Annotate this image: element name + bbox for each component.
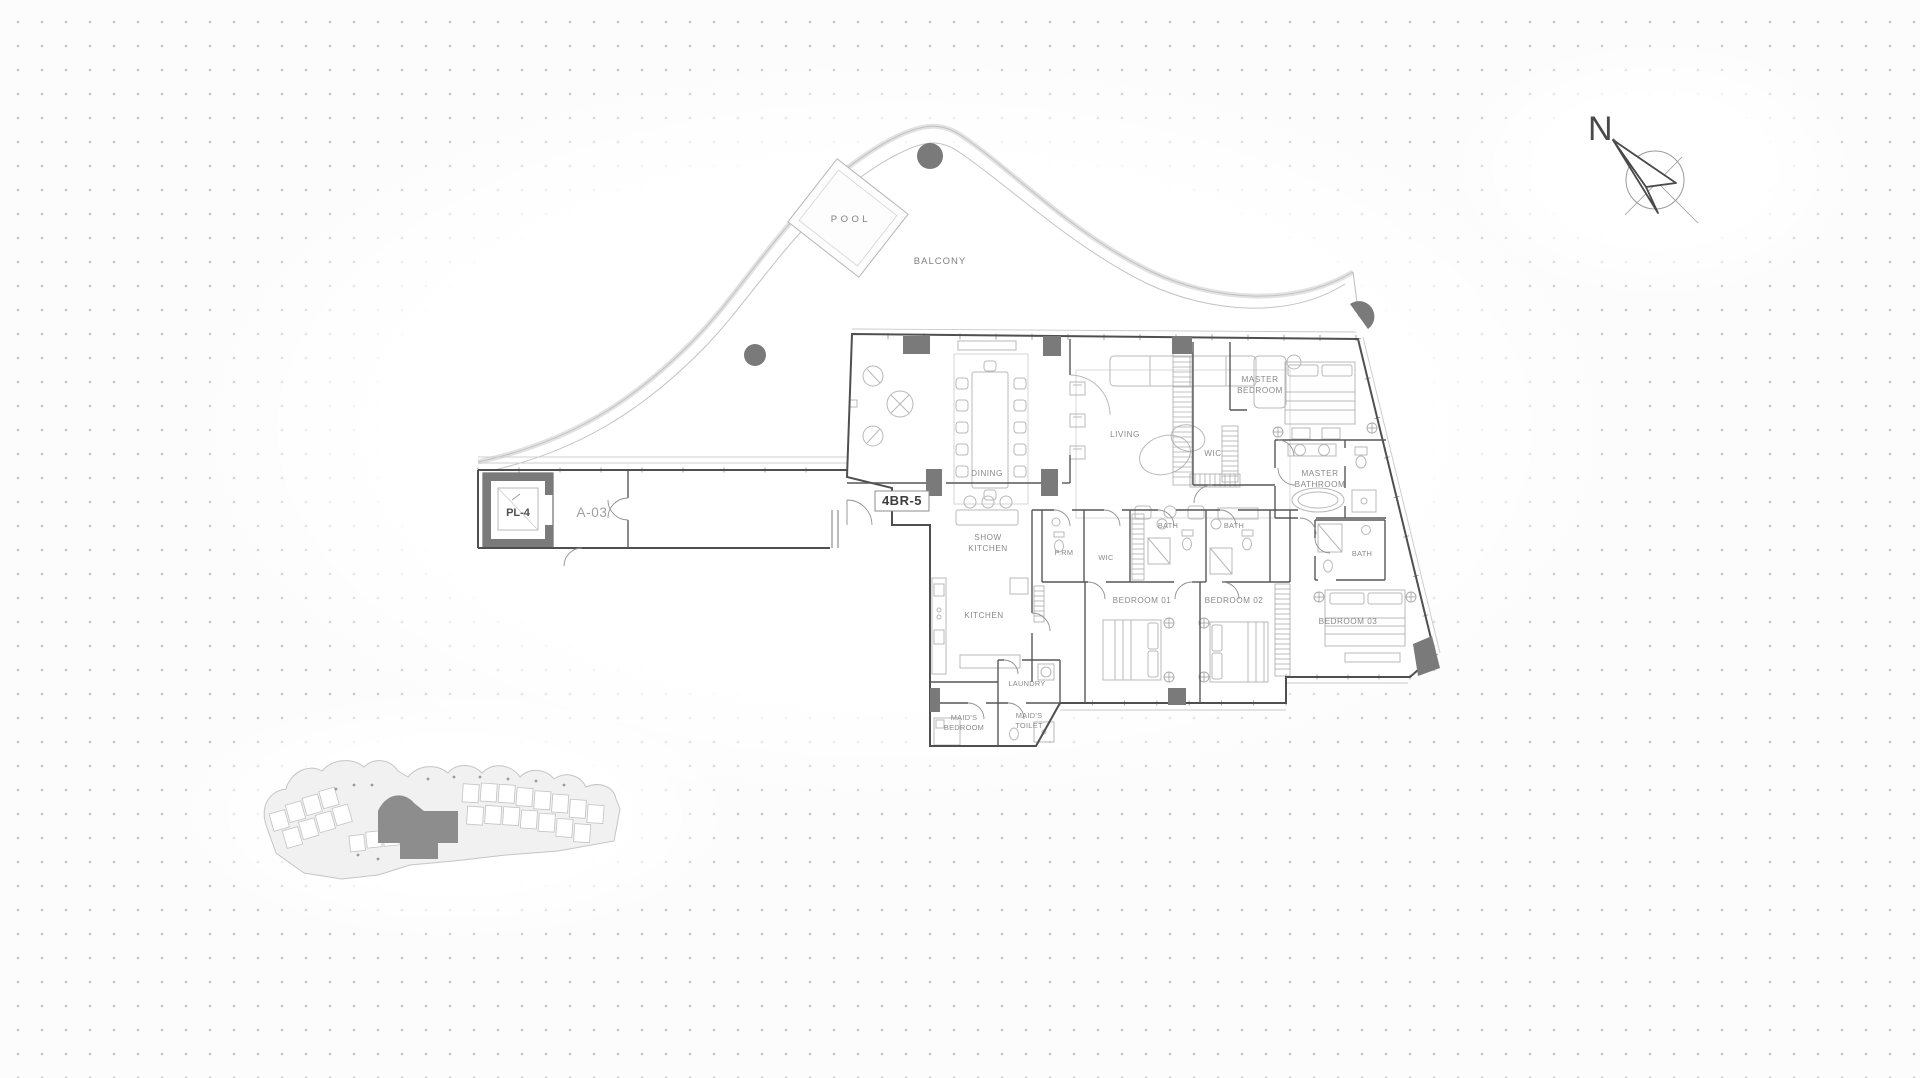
planter-column [917, 143, 943, 169]
nightstand-symbol [1314, 592, 1324, 602]
wic-master-label: WIC [1204, 449, 1221, 458]
pool: POOL [788, 159, 908, 277]
balcony-label: BALCONY [914, 256, 966, 267]
compass-rose-icon [1613, 138, 1698, 223]
dining-label: DINING [971, 469, 1003, 478]
maids-toilet-label-line1: MAID'S [1016, 711, 1043, 720]
nightstand-symbol [1273, 427, 1283, 437]
nightstand-symbol [1406, 592, 1416, 602]
show-kitchen-label-line1: SHOW [974, 533, 1001, 542]
pool-label: POOL [831, 214, 871, 225]
corner-column [1350, 301, 1374, 329]
key-plan [258, 745, 648, 895]
lift-label: PL-4 [506, 507, 531, 519]
living-label: LIVING [1110, 430, 1140, 439]
planter-column [744, 344, 766, 366]
bedroom-02-label: BEDROOM 02 [1205, 596, 1264, 605]
master-bedroom-label-line2: BEDROOM [1237, 386, 1283, 395]
master-bathroom-label-line1: MASTER [1301, 469, 1338, 478]
lobby-label: A-03 [577, 505, 608, 520]
unit-footprint [847, 334, 1435, 746]
wic2-label: WIC [1098, 553, 1114, 562]
north-label: N [1588, 110, 1613, 148]
nightstand-symbol [1164, 672, 1174, 682]
maids-bedroom-label-line1: MAID'S [951, 713, 978, 722]
unit-badge-label: 4BR-5 [882, 493, 922, 508]
bath2-label: BATH [1224, 521, 1244, 530]
master-bathroom-label-line2: BATHROOM [1295, 480, 1346, 489]
laundry-label: LAUNDRY [1008, 679, 1045, 688]
powder-room-label: P.RM [1055, 548, 1074, 557]
bedroom-01-label: BEDROOM 01 [1113, 596, 1172, 605]
maids-bedroom-label-line2: BEDROOM [944, 723, 984, 732]
nightstand-symbol [1367, 423, 1377, 433]
show-kitchen-label-line2: KITCHEN [968, 544, 1007, 553]
kitchen-label: KITCHEN [964, 611, 1003, 620]
bedroom-03-label: BEDROOM 03 [1319, 617, 1378, 626]
north-compass: N [1570, 95, 1740, 235]
nightstand-symbol [1164, 618, 1174, 628]
floor-plan: POOL BALCONY [370, 70, 1500, 790]
bath1-label: BATH [1158, 521, 1178, 530]
maids-toilet-label-line2: TOILET [1015, 721, 1043, 730]
unit-badge: 4BR-5 [875, 491, 929, 511]
master-bedroom-label-line1: MASTER [1241, 375, 1278, 384]
bath3-label: BATH [1352, 549, 1372, 558]
